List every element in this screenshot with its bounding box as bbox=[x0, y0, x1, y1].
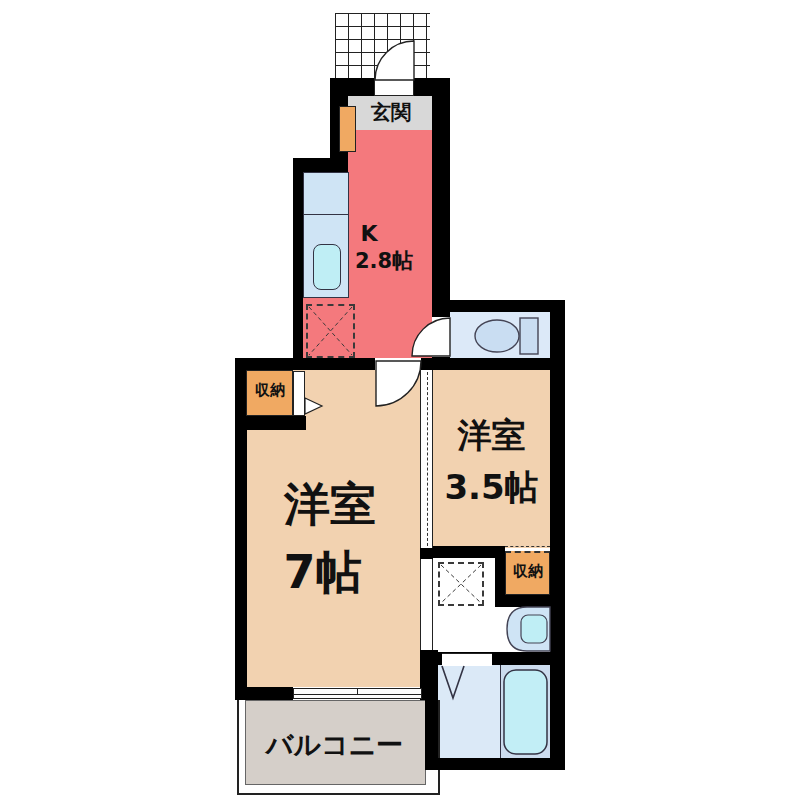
wall-bath-left bbox=[425, 650, 438, 770]
room7-label: 洋室 bbox=[240, 478, 420, 531]
refrigerator-space bbox=[306, 304, 355, 358]
toilet-icon bbox=[468, 316, 544, 356]
sliding-door-dash bbox=[427, 372, 428, 546]
room35-floor bbox=[433, 370, 550, 548]
washer-x-icon bbox=[440, 564, 482, 604]
wall-closet-bottom bbox=[247, 416, 306, 430]
kitchen-label: K bbox=[352, 221, 386, 246]
wall-room-bottom-left bbox=[235, 687, 293, 700]
shoe-cabinet bbox=[339, 106, 356, 152]
room7-size-label: 7帖 bbox=[240, 546, 405, 599]
bathtub-icon bbox=[502, 668, 549, 756]
wall-bath-bottom bbox=[425, 758, 565, 770]
closet-door-arrow-icon bbox=[304, 396, 324, 416]
washbasin-icon bbox=[505, 605, 551, 653]
balcony-label: バルコニー bbox=[245, 729, 424, 760]
refrigerator-x-icon bbox=[308, 306, 353, 356]
wall-closet2-left bbox=[495, 548, 505, 597]
sliding-door-rooms bbox=[420, 370, 433, 548]
kitchen-sink-icon bbox=[313, 244, 341, 290]
floor-plan: 玄関 K 2.8帖 収納 収納 洋室 7帖 洋室 3.5帖 バルコニー bbox=[0, 0, 800, 800]
closet-lower-label: 収納 bbox=[509, 563, 547, 580]
room35-size-label: 3.5帖 bbox=[428, 468, 555, 507]
kitchen-size-label: 2.8帖 bbox=[348, 249, 420, 273]
entrance-door-arc bbox=[374, 40, 415, 81]
washing-machine-space bbox=[438, 562, 484, 606]
genkan-label: 玄関 bbox=[360, 101, 422, 124]
wall-mid-right bbox=[421, 358, 565, 370]
bath-folding-door-icon bbox=[440, 664, 466, 702]
kitchen-counter bbox=[303, 172, 349, 298]
balcony-window-tick bbox=[357, 689, 358, 694]
sliding-door-washroom bbox=[420, 559, 433, 650]
wall-mid-left bbox=[235, 358, 375, 370]
closet-lower-dash-line bbox=[505, 546, 550, 547]
wall-toilet-top bbox=[432, 300, 565, 312]
wall-kitchen-left bbox=[293, 158, 303, 370]
counter-divider bbox=[304, 214, 348, 215]
toilet-door-arc bbox=[411, 317, 451, 357]
wall-right bbox=[550, 300, 565, 770]
room35-label: 洋室 bbox=[433, 416, 550, 455]
closet-upper-label: 収納 bbox=[252, 382, 288, 399]
kitchen-door-arc bbox=[375, 360, 422, 407]
balcony-window bbox=[293, 688, 422, 699]
